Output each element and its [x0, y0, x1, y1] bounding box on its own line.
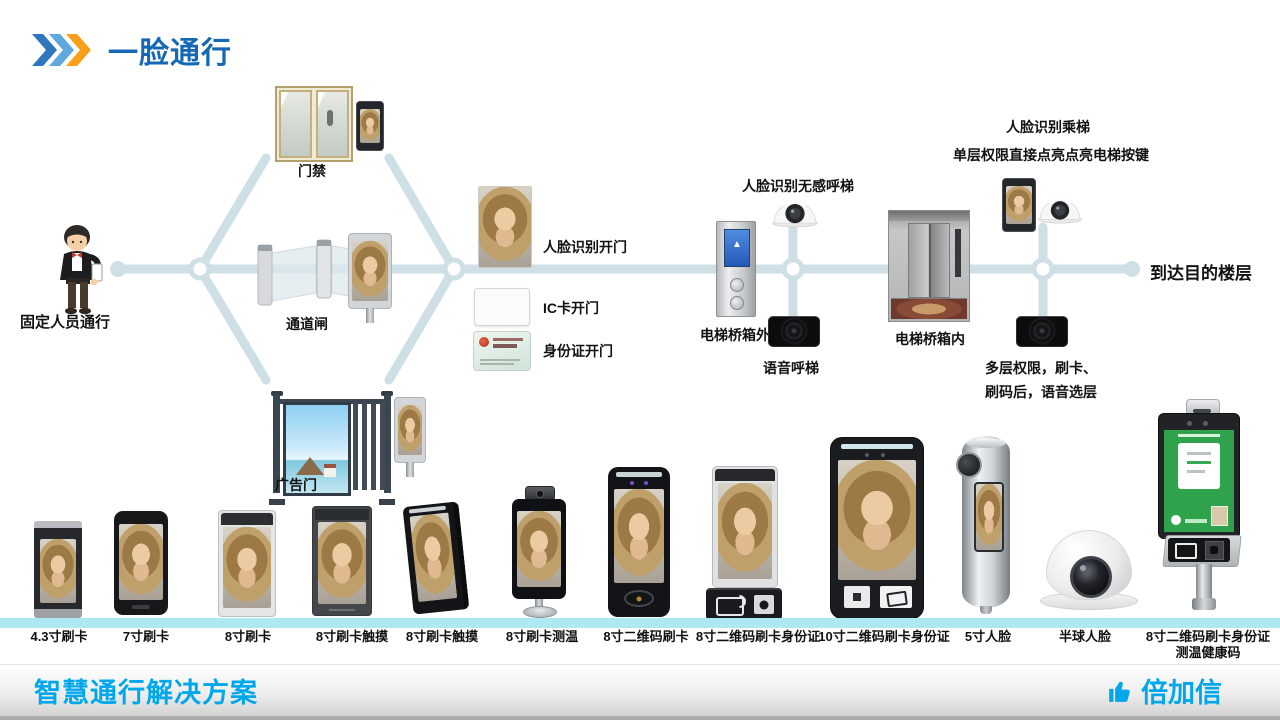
kiosk-status-bar: [1185, 519, 1207, 523]
product-label: 半球人脸: [1059, 629, 1111, 645]
id-card: [473, 331, 531, 371]
start-label: 固定人员通行: [20, 311, 110, 332]
page-title-block: 一脸通行: [32, 28, 232, 72]
device-screen-face: [517, 511, 561, 587]
thumbs-up-icon: [1107, 678, 1133, 704]
product-label: 7寸刷卡: [123, 629, 169, 645]
gate-bar: [371, 402, 376, 490]
product-label: 8寸二维码刷卡身份证: [696, 629, 820, 645]
product-label: 8寸刷卡触摸: [406, 629, 478, 645]
product-label: 5寸人脸: [965, 629, 1011, 645]
device-screen-face: [318, 522, 366, 604]
triple-chevron-icon: [32, 34, 94, 66]
product-8-inch-card-touch-terminal: [312, 506, 372, 616]
product-8-inch-card-temperature-terminal: [512, 499, 566, 599]
multi-floor-label-line1: 多层权限，刷卡、: [985, 358, 1097, 378]
camera-dots: [630, 481, 634, 485]
door-panel-left: [279, 90, 312, 158]
gate-bar: [380, 402, 385, 490]
brand-block: 倍加信: [1107, 671, 1222, 710]
kiosk-screen-title-bar: [1178, 434, 1220, 437]
id-card-emblem: [479, 337, 489, 347]
voice-floor-select-device: [1016, 316, 1068, 347]
nfc-reader-icon: [624, 590, 654, 607]
face-photo: [478, 186, 532, 268]
dome-camera-icon: [771, 188, 819, 228]
cylinder-camera-pod: [956, 452, 982, 478]
voice-call-device: [768, 316, 820, 347]
product-label: 10寸二维码刷卡身份证: [818, 629, 949, 645]
dome-camera-icon: [1037, 186, 1083, 224]
product-4-3-inch-card-terminal: [34, 521, 82, 618]
brand-name: 倍加信: [1141, 671, 1222, 710]
device-screen-face: [974, 482, 1004, 552]
product-label: 4.3寸刷卡: [30, 629, 87, 645]
poster-mountain: [296, 457, 324, 475]
reader-window-icon: [844, 586, 870, 608]
card-swipe-icon: [880, 586, 912, 608]
outside-cabin-label: 电梯桥箱外: [700, 325, 770, 345]
branch-label-gate: 通道闸: [286, 314, 328, 334]
product-health-code-kiosk: [1158, 413, 1240, 539]
product-label: 8寸刷卡测温: [506, 629, 578, 645]
footer-bar: 智慧通行解决方案 倍加信: [0, 664, 1280, 720]
face-terminal-small: [356, 101, 384, 151]
product-8-inch-card-terminal: [218, 510, 276, 617]
face-terminal-gate: [348, 233, 392, 309]
device-screen-face: [223, 527, 271, 608]
gate-foot: [379, 499, 395, 505]
cabin-doors: [908, 223, 950, 298]
cyan-divider-strip: [0, 618, 1280, 628]
person-with-phone-illustration: [50, 222, 112, 318]
branch-label-adgate: 广告门: [275, 475, 317, 495]
cylinder-bottom-tip: [980, 606, 992, 614]
multi-floor-label-line2: 刷码后，语音选层: [985, 382, 1097, 402]
elevator-cabin-photo: [888, 210, 970, 322]
ride-elevator-label: 人脸识别乘梯: [1006, 117, 1090, 137]
product-label: 8寸刷卡: [225, 629, 271, 645]
camera-icon: [1205, 541, 1224, 560]
product-label-line2: 测温健康码: [1146, 645, 1270, 661]
device-screen-face: [718, 483, 772, 579]
kiosk-qr-panel: [1178, 443, 1220, 489]
kiosk-status-dot: [1171, 515, 1181, 525]
gate-bar: [362, 402, 367, 490]
call-panel-button-up: [730, 278, 744, 292]
kiosk-photo-thumb: [1211, 506, 1228, 526]
product-8-inch-card-touch-terminal-2: [403, 501, 470, 614]
elevator-call-panel: ▲: [716, 221, 756, 317]
id-card-text-line: [493, 344, 517, 348]
device-screen-face: [614, 489, 664, 583]
door-panel-right: [316, 90, 349, 158]
card-swipe-icon: [1175, 543, 1197, 559]
kiosk-pole-collar: [1192, 598, 1216, 610]
product-label: 8寸刷卡触摸: [316, 629, 388, 645]
voice-call-label: 语音呼梯: [763, 358, 819, 378]
face-terminal-cabin: [1002, 178, 1036, 232]
product-10-inch-qr-card-id-terminal: [830, 437, 924, 619]
id-card-text-line: [493, 338, 523, 341]
cabin-carpet: [891, 298, 967, 319]
face-terminal-adgate: [394, 397, 426, 463]
poster-house: [324, 464, 336, 477]
destination-label: 到达目的楼层: [1150, 259, 1252, 284]
product-8-inch-qr-card-terminal: [608, 467, 670, 617]
branch-label-door: 门禁: [298, 161, 326, 181]
device-screen-face: [119, 524, 163, 600]
product-label: 8寸二维码刷卡: [603, 629, 688, 645]
gate-foot: [269, 499, 285, 505]
call-panel-screen: ▲: [724, 229, 750, 267]
device-screen-face: [398, 405, 422, 455]
kiosk-green-screen: [1164, 430, 1234, 532]
open-method-face-label: 人脸识别开门: [543, 237, 627, 257]
call-panel-button-down: [730, 296, 744, 310]
product-label-line1: 8寸二维码刷卡身份证: [1146, 629, 1270, 645]
device-screen-face: [838, 460, 916, 580]
page-title: 一脸通行: [108, 28, 232, 72]
open-method-id-label: 身份证开门: [543, 341, 613, 361]
device-screen-face: [1006, 186, 1032, 224]
open-method-ic-label: IC卡开门: [543, 298, 599, 318]
solution-title: 智慧通行解决方案: [34, 671, 258, 710]
id-card-text-line: [480, 363, 514, 365]
gate-bar: [353, 402, 358, 490]
product-7-inch-card-terminal: [114, 511, 168, 615]
glass-door-photo: [275, 86, 353, 162]
card-swipe-icon: [716, 597, 744, 616]
cabin-header: [889, 211, 969, 221]
ic-card: [474, 288, 530, 326]
inside-cabin-label: 电梯桥箱内: [895, 329, 965, 349]
device-screen-face: [352, 241, 388, 301]
slide-canvas: 一脸通行 固定人员通行 门禁: [0, 0, 1280, 720]
camera-dots: [865, 453, 869, 457]
single-floor-label: 单层权限直接点亮点亮电梯按键: [953, 145, 1149, 165]
flow-connector-lines: [0, 0, 1280, 520]
device-screen-face: [410, 512, 458, 602]
cabin-button-panel: [955, 229, 961, 277]
dome-camera-lens: [1070, 556, 1112, 598]
camera-icon: [754, 595, 774, 614]
device-stand-base: [523, 606, 557, 618]
product-8-inch-qr-card-id-terminal: [712, 466, 778, 588]
id-reader-module: [706, 588, 782, 620]
id-card-text-line: [480, 359, 520, 361]
product-label-two-line: 8寸二维码刷卡身份证 测温健康码: [1146, 629, 1270, 661]
device-screen-face: [360, 109, 380, 143]
kiosk-reader-module: [1168, 538, 1230, 562]
gate-post: [384, 395, 391, 493]
device-screen-face: [40, 539, 76, 603]
